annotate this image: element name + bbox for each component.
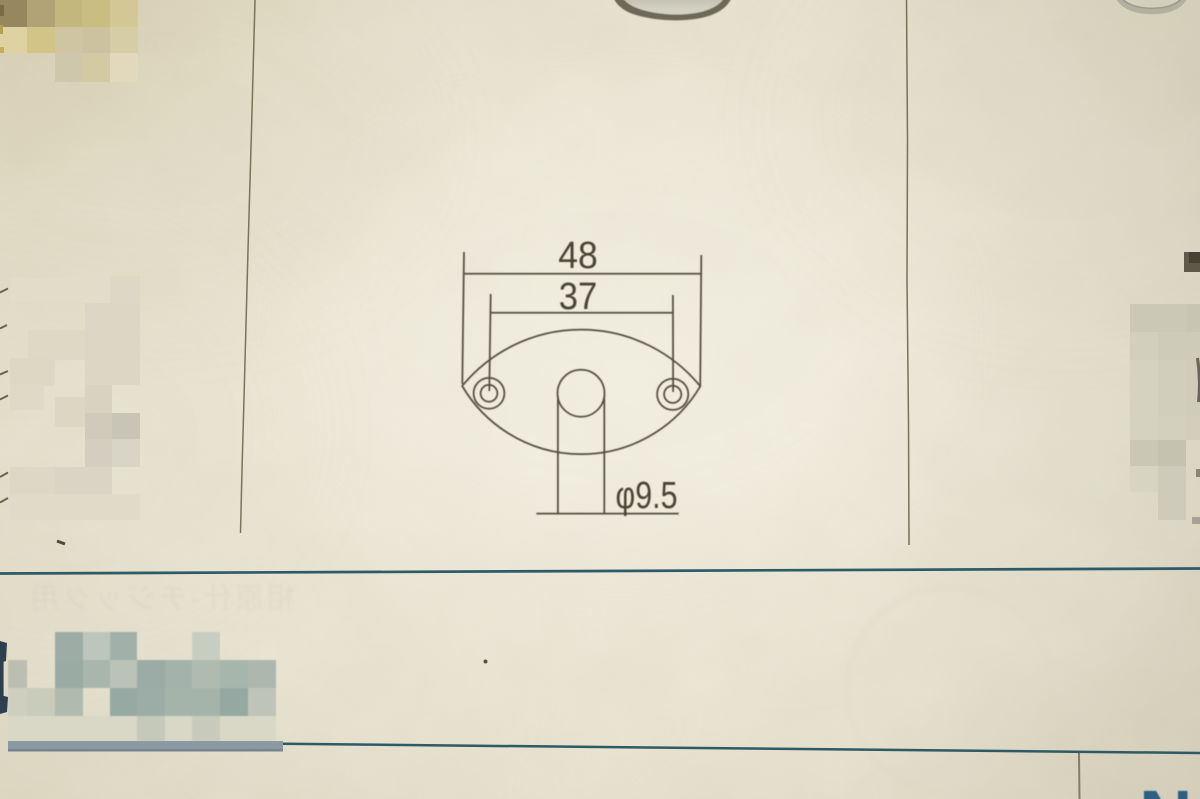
- svg-text:37: 37: [559, 276, 598, 318]
- svg-text:φ9.5: φ9.5: [616, 475, 678, 517]
- svg-text:48: 48: [558, 235, 598, 277]
- svg-text:相原什-チジック用: 相原什-チジック用: [27, 582, 296, 615]
- svg-text:N: N: [1139, 775, 1192, 799]
